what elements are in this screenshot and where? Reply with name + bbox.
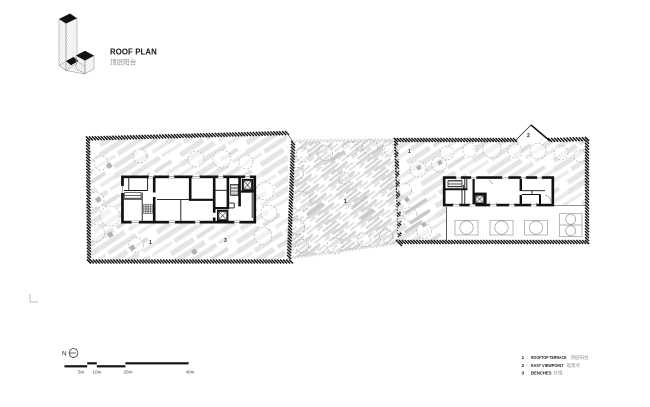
- svg-text:1: 1: [149, 240, 152, 246]
- svg-text:长椅: 长椅: [554, 370, 563, 377]
- svg-text:ROOF PLAN: ROOF PLAN: [110, 48, 157, 57]
- svg-text:BENCHES: BENCHES: [531, 371, 552, 377]
- svg-text:40m: 40m: [186, 370, 195, 375]
- svg-text:3: 3: [224, 238, 227, 244]
- svg-text:EAST VIEWPOINT: EAST VIEWPOINT: [531, 363, 564, 369]
- svg-text:1: 1: [522, 355, 525, 361]
- svg-text:5m: 5m: [78, 370, 85, 375]
- svg-text:1: 1: [344, 199, 347, 205]
- svg-text:20m: 20m: [124, 370, 133, 375]
- svg-text:N: N: [62, 351, 67, 358]
- svg-text:2: 2: [522, 363, 525, 369]
- svg-text:3: 3: [522, 371, 525, 377]
- svg-text:2: 2: [527, 133, 530, 139]
- svg-text:顶层阳台: 顶层阳台: [110, 58, 137, 67]
- svg-text:ROOFTOP TERRACE: ROOFTOP TERRACE: [531, 355, 567, 361]
- svg-text:1: 1: [408, 149, 411, 155]
- svg-text:10m: 10m: [93, 370, 102, 375]
- svg-text:顶层阳台: 顶层阳台: [571, 354, 589, 361]
